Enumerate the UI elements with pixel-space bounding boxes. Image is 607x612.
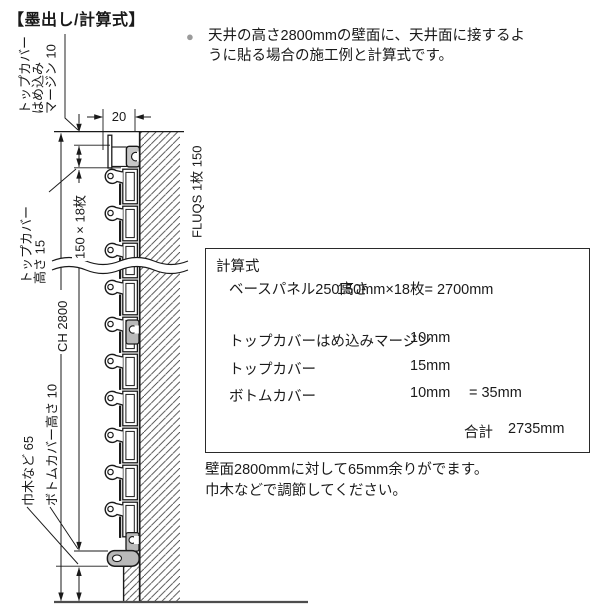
calc-row-bottom-value: 10mm bbox=[410, 385, 450, 401]
footer-line2: 巾木などで調節してください。 bbox=[205, 481, 488, 502]
calc-row-base-value: 150mm×18枚= 2700mm bbox=[337, 278, 493, 299]
calc-row-top-label: トップカバー bbox=[229, 358, 316, 379]
calc-row-margin-label: トップカバーはめ込みマージン bbox=[229, 330, 432, 351]
intro-line1: 天井の高さ2800mmの壁面に、天井面に接するよ bbox=[186, 26, 600, 46]
calc-row-bottom-label: ボトムカバー bbox=[229, 385, 316, 406]
calc-total-label: 合計 bbox=[464, 421, 493, 442]
dim-depth-label: 20 bbox=[112, 109, 126, 124]
calc-box-heading: 計算式 bbox=[216, 255, 260, 276]
calc-box: 計算式 ベースパネル250高さ 150mm×18枚= 2700mm トップカバー… bbox=[205, 248, 590, 453]
bottom-cover-label: ボトムカバー高さ 10 bbox=[45, 384, 60, 506]
panel-stack bbox=[105, 169, 137, 538]
intro-text: ● 天井の高さ2800mmの壁面に、天井面に接するよ うに貼る場合の施工例と計算… bbox=[186, 26, 600, 66]
bullet-icon: ● bbox=[186, 27, 194, 47]
intro-line2: うに貼る場合の施工例と計算式です。 bbox=[186, 46, 600, 66]
footer-note: 壁面2800mmに対して65mm余りがでます。 巾木などで調節してください。 bbox=[205, 460, 488, 501]
ceiling-height-label: CH 2800 bbox=[55, 301, 70, 352]
manual-page: 20 トップカバー はめ込み マージン 10 トップカバー 高さ 15 150 … bbox=[0, 0, 607, 612]
footer-line1: 壁面2800mmに対して65mm余りがでます。 bbox=[205, 460, 488, 481]
top-margin-label-3: マージン 10 bbox=[44, 44, 59, 114]
top-cover-label-2: 高さ 15 bbox=[33, 240, 48, 284]
calc-row-bottom-sum: = 35mm bbox=[469, 385, 522, 401]
calc-row-top-value: 15mm bbox=[410, 358, 450, 374]
product-label: FLUQS 1枚 150 bbox=[190, 146, 205, 239]
panel-stack-label: 150 × 18枚 bbox=[73, 195, 88, 259]
calc-row-margin-value: 10mm bbox=[410, 330, 450, 346]
skirting-label: 巾木など 65 bbox=[21, 436, 36, 506]
top-cover bbox=[108, 135, 140, 168]
bottom-cover bbox=[107, 533, 139, 567]
calc-total-value: 2735mm bbox=[508, 421, 564, 437]
joint-clip bbox=[126, 320, 139, 344]
page-title: 【墨出し/計算式】 bbox=[8, 6, 145, 30]
